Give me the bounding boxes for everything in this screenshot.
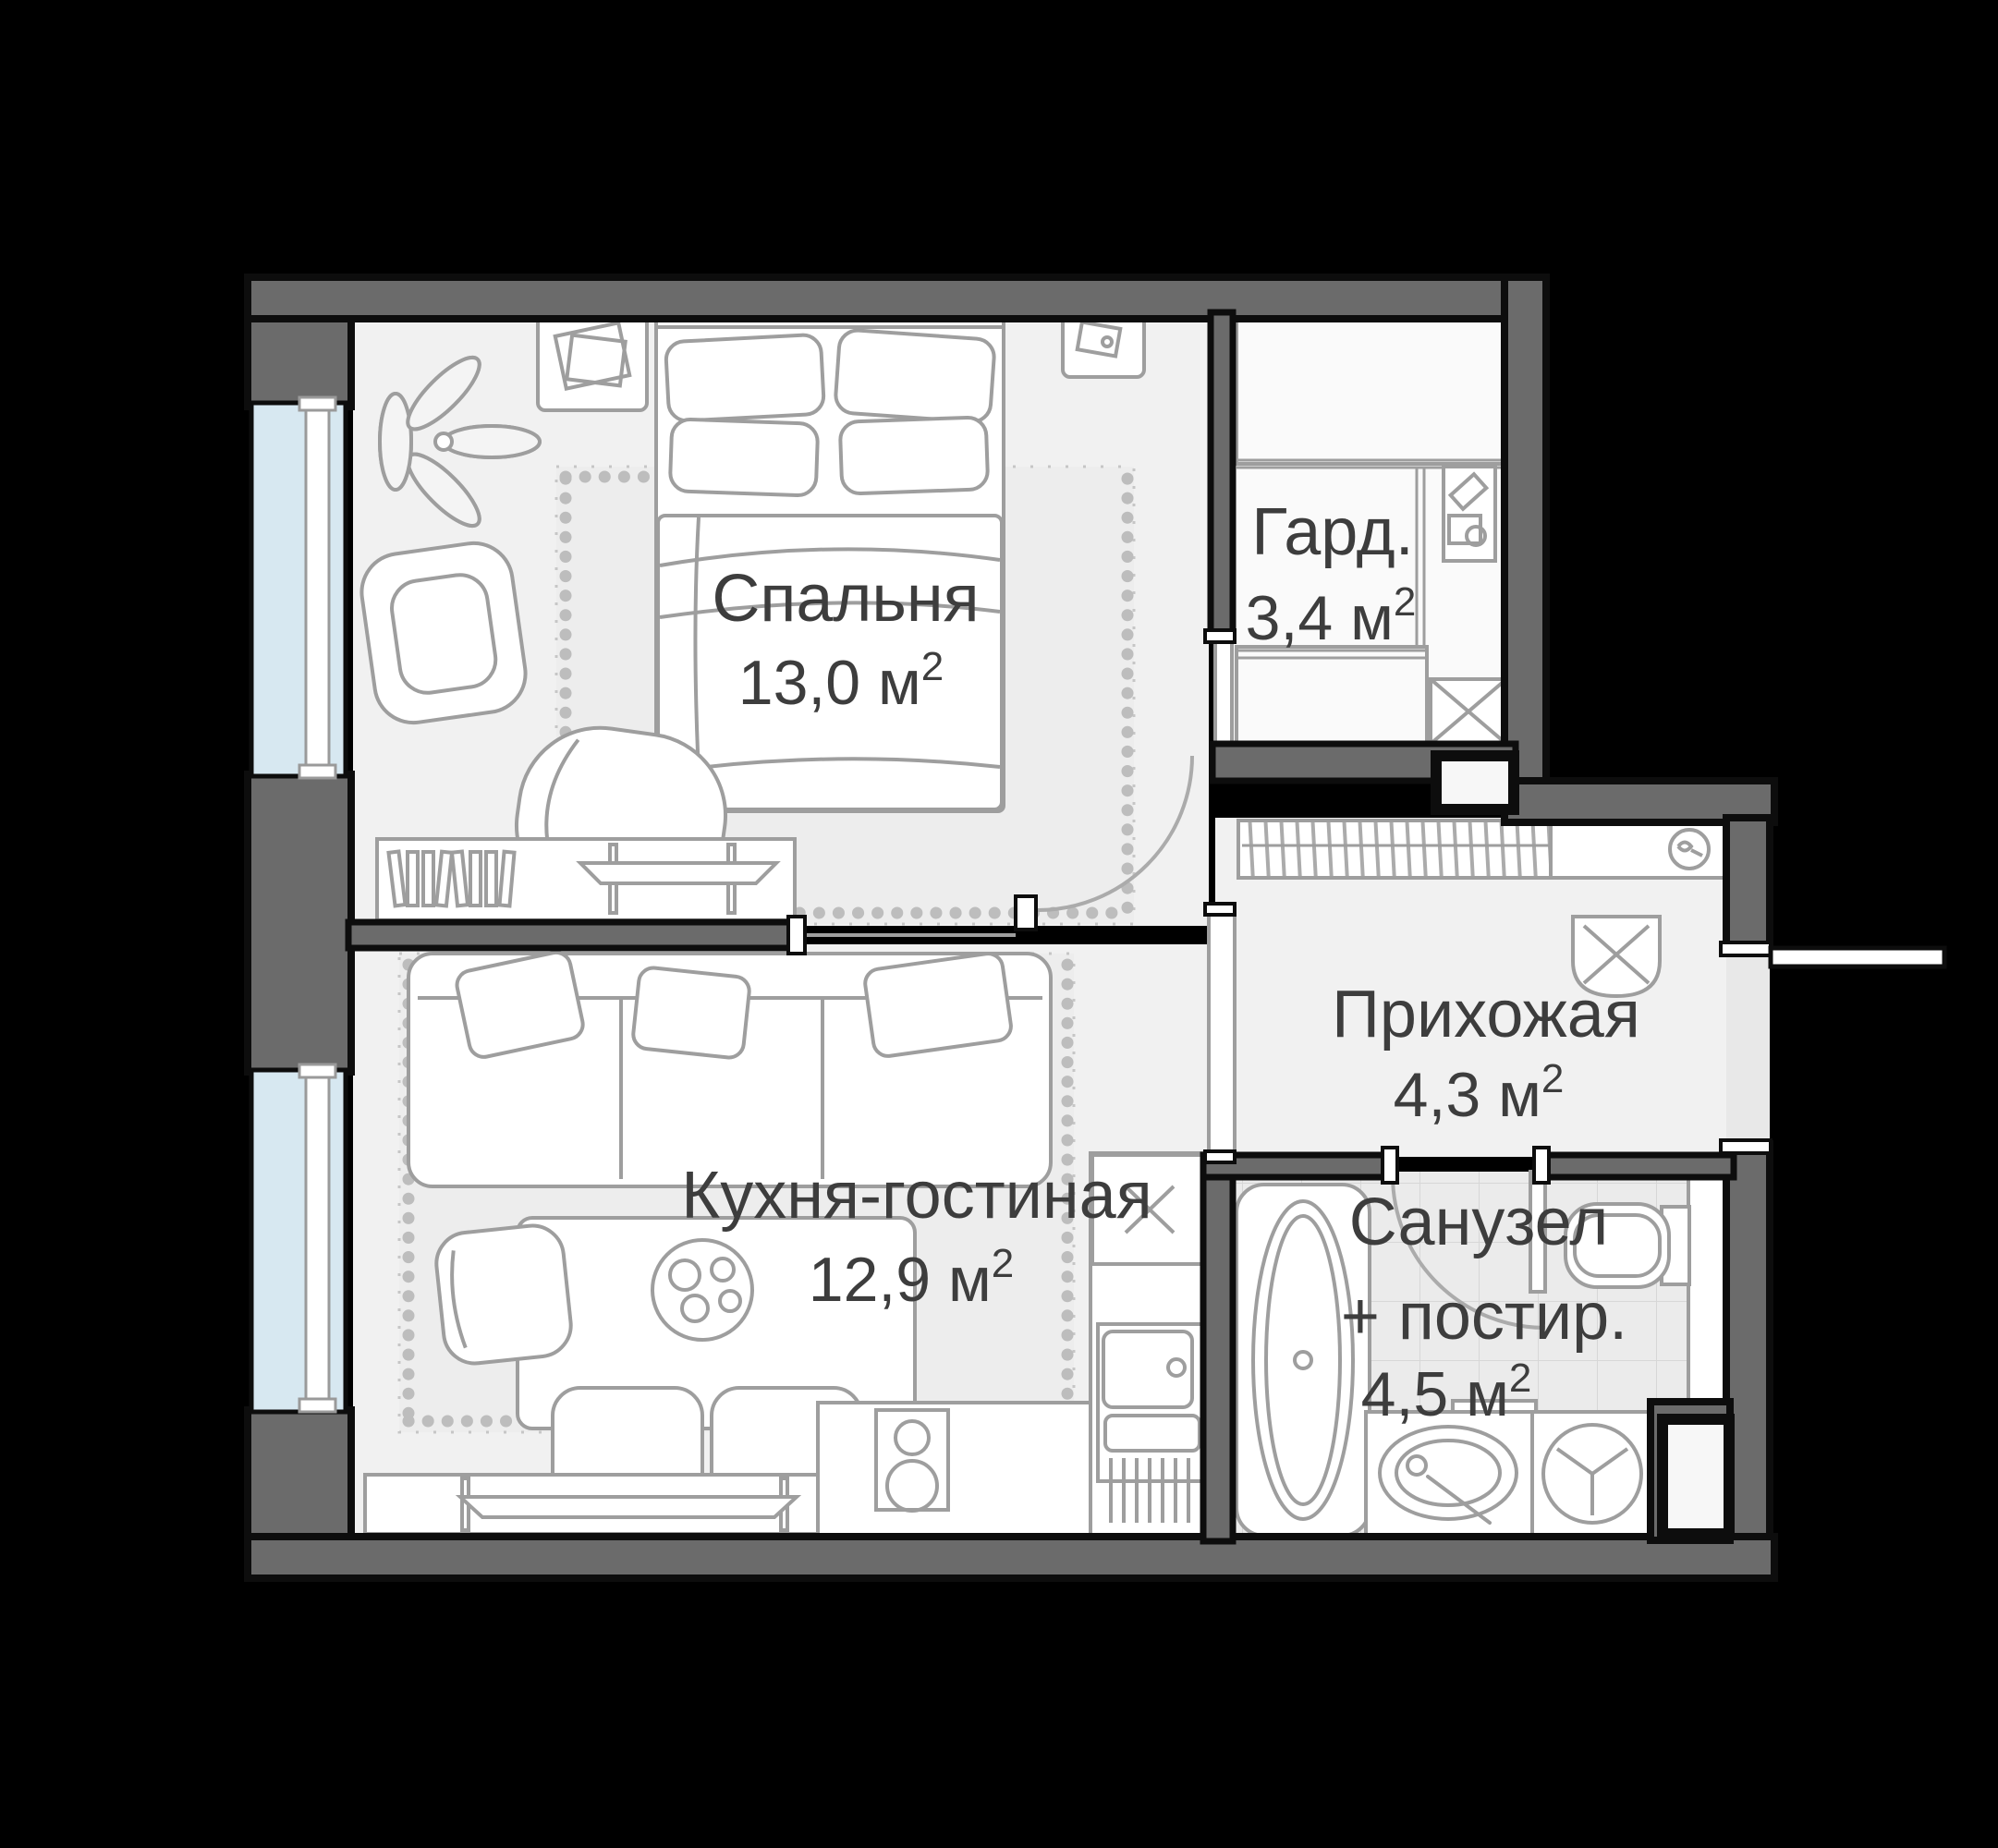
- entrance-jamb-top: [1721, 942, 1771, 955]
- wall-left-pier: [248, 774, 351, 1072]
- svg-text:Спальня: Спальня: [712, 562, 979, 636]
- floor-plan: Спальня 13,0 м2 Гард. 3,4 м2 Прихожая 4,…: [0, 0, 1998, 1848]
- kitchen-bench-console: [365, 1475, 818, 1534]
- svg-text:Санузел: Санузел: [1349, 1185, 1608, 1259]
- jamb-panel-top: [1205, 904, 1235, 915]
- jamb-bathroom-door-right: [1534, 1148, 1549, 1183]
- wardrobe-cabinet-x: [1431, 679, 1506, 744]
- wall-right-entry-upper: [1726, 818, 1770, 952]
- jamb-panel-bottom: [1205, 1151, 1235, 1162]
- wall-bottom: [248, 1537, 1774, 1578]
- wall-top: [248, 277, 1546, 319]
- entrance-threshold: [1726, 952, 1770, 1144]
- svg-text:13,0 м2: 13,0 м2: [738, 644, 944, 718]
- nightstand-left: [538, 309, 647, 410]
- dish-rack: [1111, 1458, 1188, 1523]
- jamb-bedroom-door: [1016, 896, 1036, 930]
- jamb-wardrobe-wall: [1205, 630, 1235, 642]
- svg-text:+ постир.: + постир.: [1341, 1280, 1627, 1354]
- bedroom-door-leaf: [1215, 642, 1232, 755]
- wall-bedroom-wardrobe: [1211, 312, 1233, 638]
- duct-shaft-lower: [1651, 1402, 1730, 1540]
- svg-text:Гард.: Гард.: [1251, 495, 1413, 569]
- wall-bathroom-left: [1203, 1155, 1233, 1541]
- svg-text:3,4 м2: 3,4 м2: [1246, 579, 1417, 653]
- window-kitchen: [251, 1064, 346, 1412]
- kitchen-sink: [1098, 1324, 1203, 1481]
- hallway-closet: [1238, 821, 1726, 878]
- wall-bedroom-kitchen: [348, 922, 801, 948]
- svg-text:4,5 м2: 4,5 м2: [1361, 1356, 1532, 1429]
- wall-bathroom-top-right: [1541, 1155, 1734, 1177]
- wall-panel-hallway: [1209, 910, 1235, 1161]
- stove: [876, 1410, 948, 1511]
- duct-shaft-upper: [1436, 756, 1514, 809]
- armchair: [357, 538, 530, 727]
- svg-text:Прихожая: Прихожая: [1332, 978, 1640, 1052]
- chair-left: [433, 1222, 574, 1367]
- entrance-jamb-bottom: [1721, 1140, 1771, 1153]
- bed: [656, 305, 1004, 811]
- wall-right-upper: [1505, 277, 1546, 785]
- jamb-partition: [788, 917, 805, 954]
- bathroom-sink: [1366, 1412, 1532, 1536]
- window-bedroom: [251, 397, 346, 778]
- entrance-door-leaf: [1771, 948, 1944, 967]
- floor-plan-page: Спальня 13,0 м2 Гард. 3,4 м2 Прихожая 4,…: [0, 0, 1998, 1848]
- dresser-tv-console: [377, 839, 795, 920]
- svg-text:12,9 м2: 12,9 м2: [809, 1241, 1014, 1315]
- svg-text:Кухня-гостиная: Кухня-гостиная: [681, 1159, 1151, 1233]
- jamb-bathroom-door-left: [1383, 1148, 1397, 1183]
- svg-text:4,3 м2: 4,3 м2: [1394, 1056, 1565, 1130]
- wardrobe-desk: [1444, 467, 1495, 561]
- plumbing-chase: [1688, 1173, 1726, 1402]
- sofa: [408, 950, 1051, 1186]
- kitchen-counter-bottom: [818, 1403, 1092, 1537]
